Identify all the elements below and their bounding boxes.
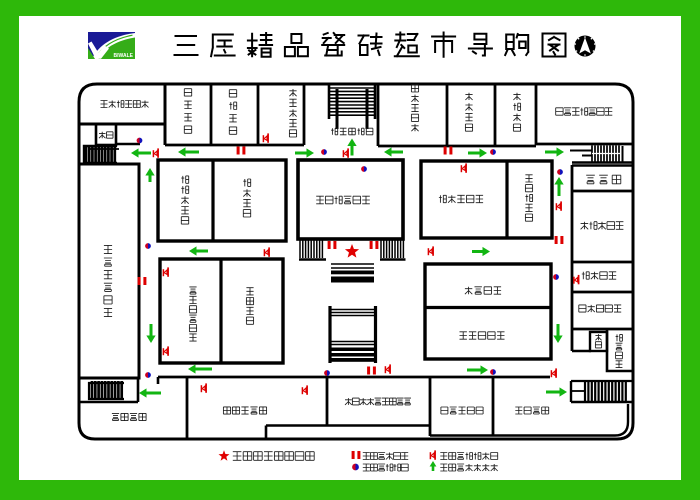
svg-text:BIWALE: BIWALE: [114, 53, 134, 59]
